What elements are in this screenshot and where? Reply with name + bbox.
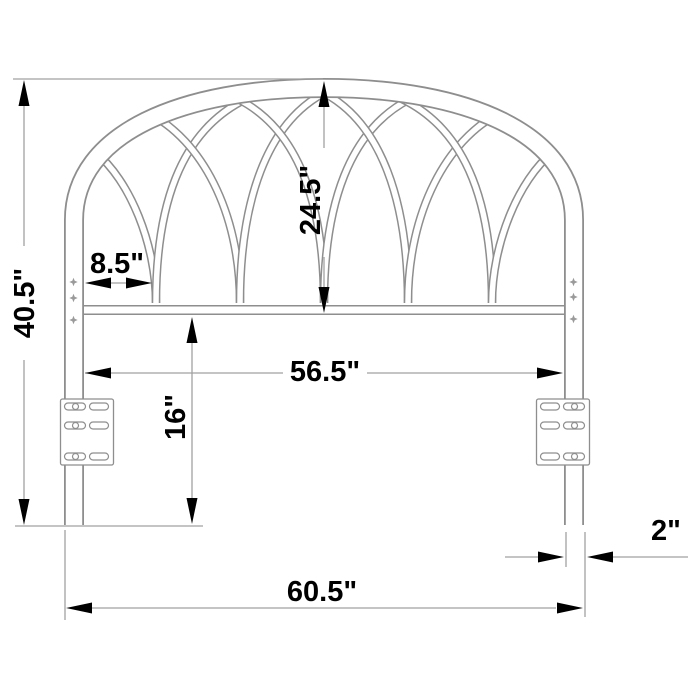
inner-width-label: 56.5" xyxy=(290,356,360,388)
arrowhead-up-icon xyxy=(187,317,198,343)
arrowhead-left-icon xyxy=(587,552,613,563)
arrowhead-down-icon xyxy=(187,498,198,524)
arrowhead-right-icon xyxy=(538,552,564,563)
overall-height-label: 40.5" xyxy=(9,268,41,338)
arrowhead-right-icon xyxy=(557,603,583,614)
arrowhead-left-icon xyxy=(85,368,111,379)
overall-width-label: 60.5" xyxy=(287,576,357,608)
arrowhead-right-icon xyxy=(537,368,563,379)
dimension-inner-width: 56.5" xyxy=(85,356,563,388)
mounting-bracket-left xyxy=(61,399,114,465)
arch-spacing-label: 8.5" xyxy=(90,248,144,280)
diagram-svg: 40.5" 24.5" 8.5" 56.5" xyxy=(0,0,700,700)
arrowhead-up-icon xyxy=(19,80,30,106)
leg-width-label: 2" xyxy=(651,515,681,547)
dimension-arch-height: 24.5" xyxy=(295,81,330,313)
dimension-bracket-to-floor: 16" xyxy=(160,317,198,524)
headboard-dimension-diagram: 40.5" 24.5" 8.5" 56.5" xyxy=(0,0,700,700)
bracket-to-floor-label: 16" xyxy=(160,394,192,440)
mounting-bracket-right xyxy=(537,399,590,465)
arch-height-label: 24.5" xyxy=(295,165,327,235)
dimension-overall-width: 60.5" xyxy=(65,530,583,620)
dimension-leg-width: 2" xyxy=(505,515,688,617)
arrowhead-left-icon xyxy=(66,603,92,614)
dimension-arch-spacing: 8.5" xyxy=(85,248,152,289)
arrowhead-down-icon xyxy=(19,499,30,525)
